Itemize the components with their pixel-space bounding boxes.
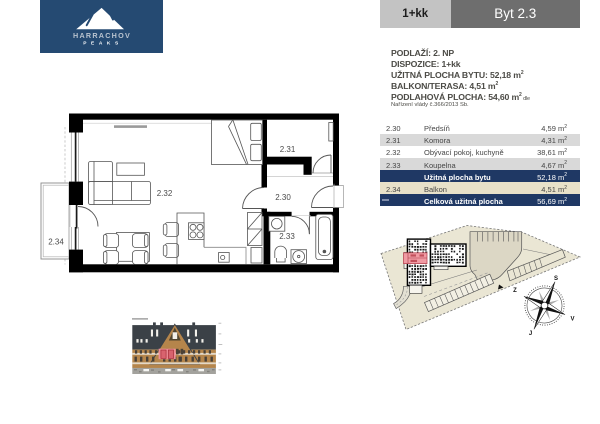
svg-text:2.33: 2.33 [279,232,295,241]
svg-text:Z: Z [513,288,517,294]
svg-text:2.32: 2.32 [157,189,173,198]
svg-text:2.31: 2.31 [280,145,296,154]
svg-text:J: J [529,331,532,337]
svg-text:2.34: 2.34 [48,238,64,247]
svg-text:S: S [554,276,558,282]
svg-text:V: V [570,317,574,323]
svg-text:2.30: 2.30 [275,193,291,202]
